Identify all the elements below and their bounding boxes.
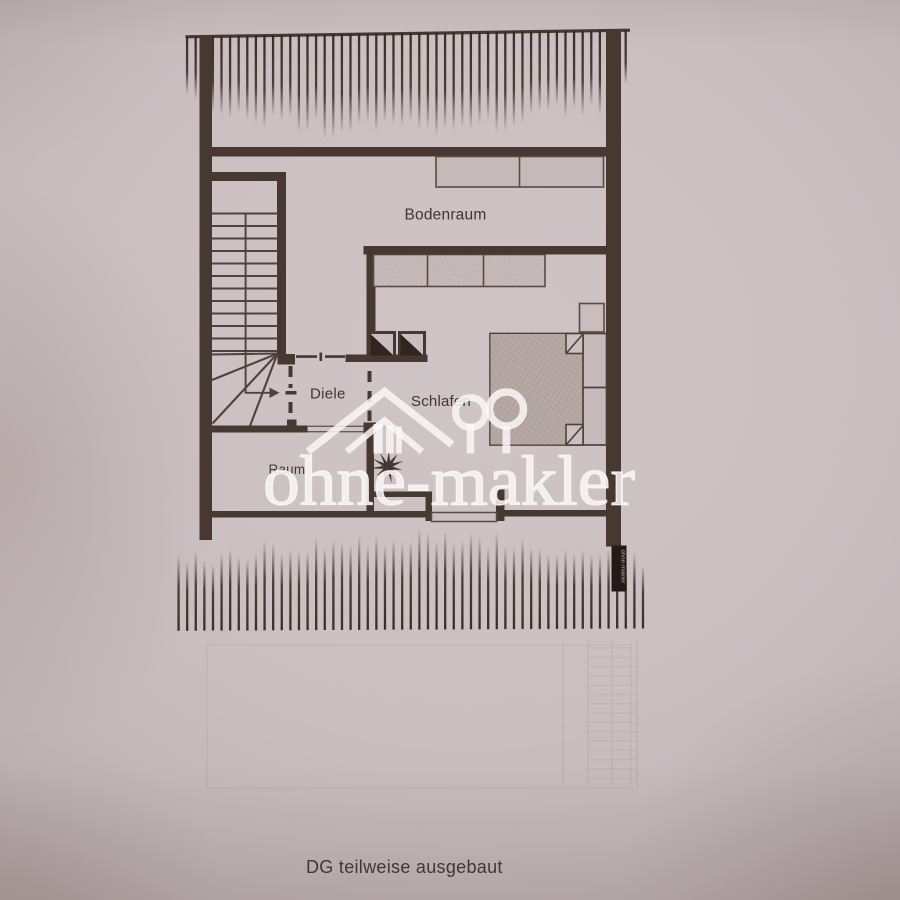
svg-text:ohne-makler: ohne-makler <box>263 443 635 521</box>
